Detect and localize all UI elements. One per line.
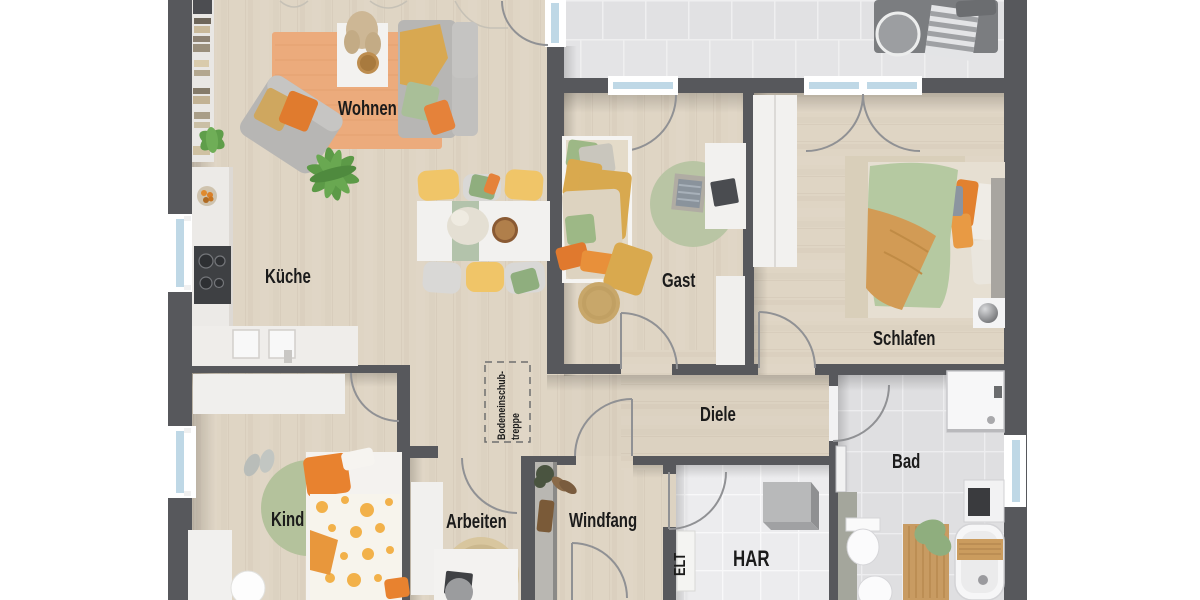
svg-text:Gast: Gast [662,269,695,292]
svg-text:Kind: Kind [271,508,304,531]
svg-text:treppe: treppe [510,413,522,440]
svg-text:Diele: Diele [700,403,736,426]
svg-text:Küche: Küche [265,265,311,288]
svg-text:Schlafen: Schlafen [873,327,935,350]
svg-text:ELT: ELT [672,553,690,576]
svg-text:Arbeiten: Arbeiten [446,510,507,533]
svg-text:HAR: HAR [733,547,770,572]
svg-text:Wohnen: Wohnen [338,97,397,120]
svg-text:Bad: Bad [892,450,920,473]
svg-text:Windfang: Windfang [569,509,637,532]
svg-text:Bodeneinschub-: Bodeneinschub- [496,371,508,440]
